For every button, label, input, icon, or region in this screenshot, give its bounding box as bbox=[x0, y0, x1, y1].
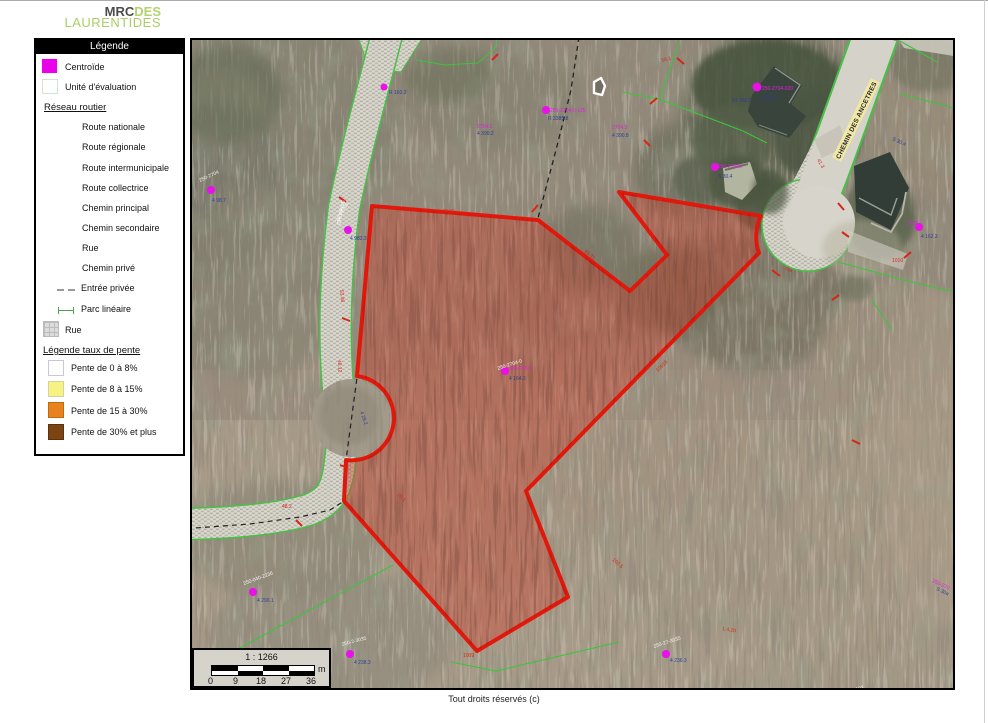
svg-text:250-2704-020: 250-2704-020 bbox=[762, 86, 793, 92]
svg-text:41 760.0: 41 760.0 bbox=[732, 98, 752, 104]
svg-text:4 390.8: 4 390.8 bbox=[612, 133, 629, 139]
svg-text:4 290.1: 4 290.1 bbox=[257, 598, 274, 604]
svg-text:250-27040: 250-27040 bbox=[718, 164, 742, 170]
svg-text:4 162.3: 4 162.3 bbox=[921, 234, 938, 240]
svg-text:48.78: 48.78 bbox=[442, 208, 455, 215]
svg-text:4 150.2: 4 150.2 bbox=[760, 95, 777, 101]
svg-text:S 30.4: S 30.4 bbox=[718, 174, 733, 180]
svg-text:4 164.3: 4 164.3 bbox=[509, 376, 526, 382]
svg-text:48.2: 48.2 bbox=[282, 504, 292, 510]
svg-text:4 236.3: 4 236.3 bbox=[670, 658, 687, 664]
svg-text:1010: 1010 bbox=[892, 258, 903, 264]
svg-text:2704.1: 2704.1 bbox=[477, 124, 493, 130]
svg-text:4 390.2: 4 390.2 bbox=[477, 131, 494, 137]
svg-text:R 160.2: R 160.2 bbox=[389, 90, 407, 96]
svg-text:R 3385.8: R 3385.8 bbox=[548, 116, 569, 122]
svg-text:250-2704-0-125: 250-2704-0-125 bbox=[550, 108, 586, 114]
svg-text:4 238.3: 4 238.3 bbox=[354, 660, 371, 666]
svg-text:4 982.3: 4 982.3 bbox=[350, 236, 367, 242]
svg-text:48.12: 48.12 bbox=[336, 360, 342, 373]
svg-text:1009: 1009 bbox=[463, 653, 474, 659]
svg-text:4 98.7: 4 98.7 bbox=[212, 198, 226, 204]
svg-text:2704.3: 2704.3 bbox=[612, 125, 628, 131]
